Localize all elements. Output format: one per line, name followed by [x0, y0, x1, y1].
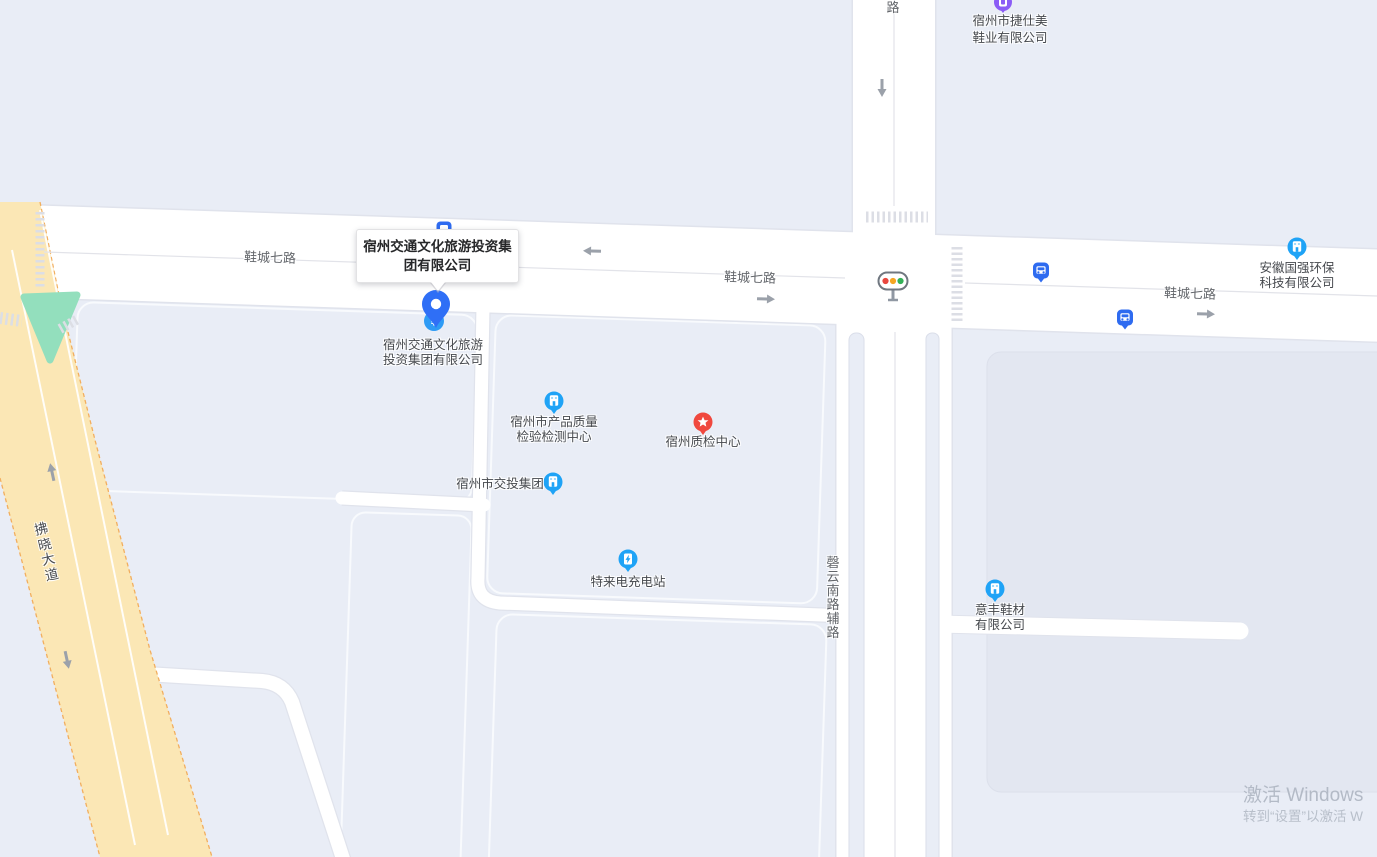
poi-jiaotou-name: 宿州市交投集团	[456, 477, 544, 492]
poi-teladian-name: 特来电充电站	[590, 575, 665, 590]
road-internal-stub	[342, 498, 484, 505]
poi-yifeng-line2: 有限公司	[975, 618, 1025, 633]
poi-jieshimei-line2: 鞋业有限公司	[972, 30, 1047, 47]
windows-activation-watermark: 激活 Windows 转到“设置”以激活 W	[1243, 784, 1363, 826]
selected-place-tooltip[interactable]: 宿州交通文化旅游投资集团有限公司	[356, 229, 519, 283]
poi-label-yifeng[interactable]: 意丰鞋材 有限公司	[975, 603, 1025, 633]
poi-label-jiaotou[interactable]: 宿州市交投集团	[456, 477, 544, 492]
poi-zhiliang-line2: 检验检测中心	[510, 430, 598, 445]
poi-label-guoqiang[interactable]: 安徽国强环保 科技有限公司	[1259, 261, 1334, 291]
road-label-xiecheng-3: 鞋城七路	[1164, 285, 1216, 302]
poi-guoqiang-line2: 科技有限公司	[1259, 276, 1334, 291]
road-label-qingyun-aux: 磬云南路辅路	[826, 556, 840, 640]
selected-place-name: 宿州交通文化旅游投资集团有限公司	[362, 237, 513, 275]
road-label-xiecheng-1: 鞋城七路	[244, 249, 296, 266]
poi-label-teladian[interactable]: 特来电充电站	[590, 575, 665, 590]
selected-place-label[interactable]: 宿州交通文化旅游 投资集团有限公司	[383, 338, 483, 368]
watermark-line1: 激活 Windows	[1243, 784, 1363, 808]
watermark-line2: 转到“设置”以激活 W	[1243, 808, 1363, 826]
poi-zhiliang-line1: 宿州市产品质量	[510, 415, 598, 430]
selected-place-label-line2: 投资集团有限公司	[383, 353, 483, 368]
road-label-north-partial: 路	[886, 0, 899, 15]
poi-label-zhijian[interactable]: 宿州质检中心	[665, 435, 740, 450]
poi-jieshimei-line1: 宿州市捷仕美	[972, 13, 1047, 30]
poi-label-jieshimei[interactable]: 宿州市捷仕美 鞋业有限公司	[972, 13, 1047, 46]
poi-yifeng-line1: 意丰鞋材	[975, 603, 1025, 618]
poi-label-zhiliang[interactable]: 宿州市产品质量 检验检测中心	[510, 415, 598, 445]
selected-place-label-line1: 宿州交通文化旅游	[383, 338, 483, 353]
building-block-large	[987, 352, 1377, 792]
poi-guoqiang-line1: 安徽国强环保	[1259, 261, 1334, 276]
map-canvas[interactable]: { "map_labels": { "road_xiecheng": "鞋城七路…	[0, 0, 1377, 857]
poi-zhijian-name: 宿州质检中心	[665, 435, 740, 450]
road-label-xiecheng-2: 鞋城七路	[724, 269, 776, 286]
map-geometry: ¥	[0, 0, 1377, 857]
